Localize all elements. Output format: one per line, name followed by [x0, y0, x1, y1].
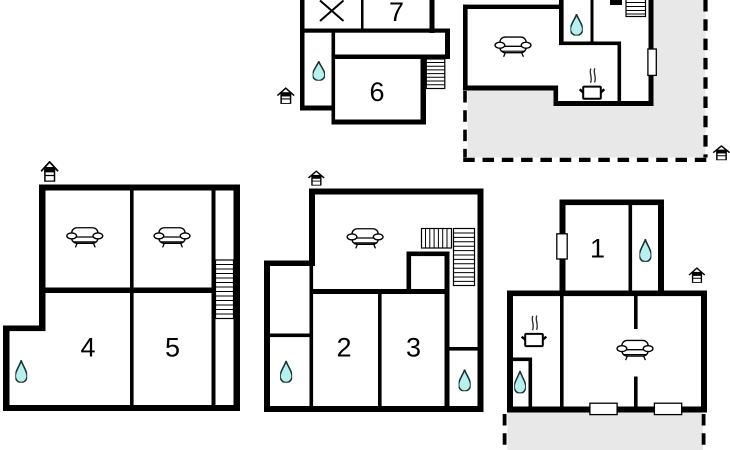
svg-text:7: 7 — [389, 0, 404, 27]
svg-text:5: 5 — [165, 333, 180, 363]
svg-text:2: 2 — [336, 333, 351, 363]
svg-text:1: 1 — [590, 234, 605, 264]
svg-text:6: 6 — [369, 77, 384, 107]
svg-text:4: 4 — [80, 333, 95, 363]
svg-text:3: 3 — [406, 333, 421, 363]
